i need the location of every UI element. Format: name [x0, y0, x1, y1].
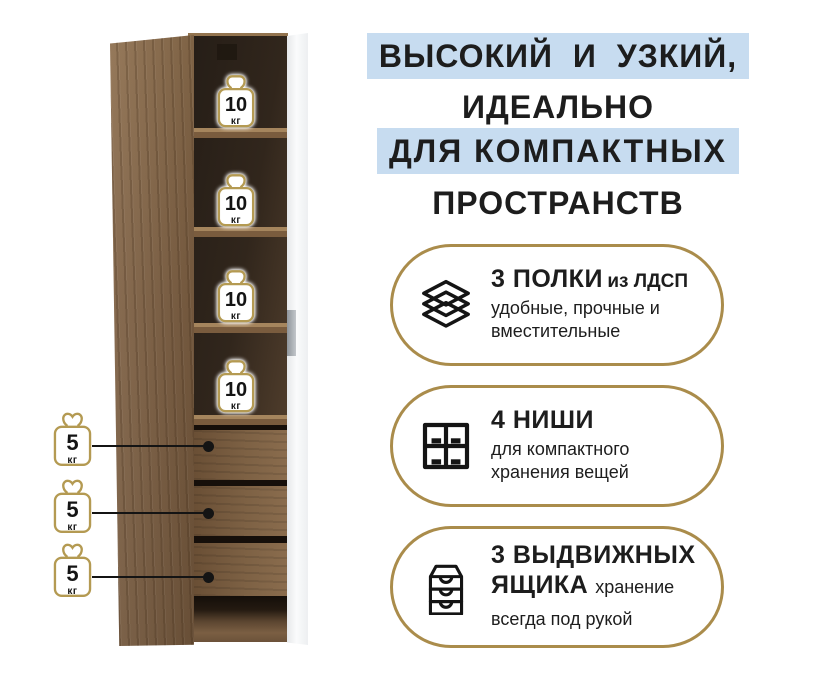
capacity-unit: кг	[67, 523, 77, 533]
cabinet-shelf	[194, 227, 287, 237]
grid-icon	[418, 418, 474, 474]
feature-title-line: 3 ПОЛКИ из ЛДСП	[491, 267, 707, 292]
feature-text: 4 НИШИ для компактного хранения вещей	[491, 408, 693, 484]
capacity-value: 10	[225, 380, 247, 400]
cabinet-illustration: 10кг 10кг 10кг 10кг	[110, 33, 310, 648]
drawer-capacity-badge: 5кг	[53, 410, 92, 468]
feature-title-line: 3 ВЫДВИЖНЫХ ЯЩИКА хранение всегда под ру…	[491, 540, 707, 634]
capacity-value: 5	[66, 563, 78, 585]
feature-subtitle: из ЛДСП	[607, 271, 688, 292]
capacity-value: 10	[225, 95, 247, 115]
title-line-1: ВЫСОКИЙ И УЗКИЙ,	[356, 33, 760, 79]
leader-dot	[203, 572, 214, 583]
leader-line	[92, 576, 210, 578]
leader-line	[92, 512, 210, 514]
feature-card-shelves: 3 ПОЛКИ из ЛДСП удобные, прочные и вмест…	[390, 244, 724, 366]
feature-card-drawers: 3 ВЫДВИЖНЫХ ЯЩИКА хранение всегда под ру…	[390, 526, 724, 648]
title-highlight-1: ВЫСОКИЙ И УЗКИЙ,	[367, 33, 749, 79]
shelf-capacity-badge: 10кг	[217, 172, 255, 228]
feature-text: 3 ВЫДВИЖНЫХ ЯЩИКА хранение всегда под ру…	[491, 540, 707, 634]
door-hinge	[217, 44, 237, 60]
capacity-value: 5	[66, 499, 78, 521]
title-line-3: ДЛЯ КОМПАКТНЫХ	[356, 128, 760, 174]
door-handle	[287, 310, 296, 356]
capacity-unit: кг	[231, 312, 241, 322]
shelf-capacity-badge: 10кг	[217, 73, 255, 129]
leader-dot	[203, 441, 214, 452]
capacity-unit: кг	[231, 216, 241, 226]
feature-card-niches: 4 НИШИ для компактного хранения вещей	[390, 385, 724, 507]
cabinet-door	[287, 33, 308, 645]
cabinet-drawer	[194, 536, 287, 596]
feature-title-line: 4 НИШИ	[491, 408, 693, 433]
cabinet-bottom-niche	[194, 596, 287, 642]
leader-dot	[203, 508, 214, 519]
capacity-unit: кг	[231, 117, 241, 127]
leader-line	[92, 445, 210, 447]
title-highlight-2: ДЛЯ КОМПАКТНЫХ	[377, 128, 739, 174]
infographic-canvas: ВЫСОКИЙ И УЗКИЙ, ИДЕАЛЬНО ДЛЯ КОМПАКТНЫХ…	[0, 0, 816, 700]
title-line-4: ПРОСТРАНСТВ	[356, 180, 760, 226]
cabinet-side-panel	[110, 35, 194, 646]
cabinet-shelf	[194, 415, 287, 425]
shelf-capacity-badge: 10кг	[217, 358, 255, 414]
title-line-2: ИДЕАЛЬНО	[356, 84, 760, 130]
shelf-capacity-badge: 10кг	[217, 268, 255, 324]
capacity-value: 10	[225, 194, 247, 214]
capacity-value: 10	[225, 290, 247, 310]
capacity-unit: кг	[231, 402, 241, 412]
feature-text: 3 ПОЛКИ из ЛДСП удобные, прочные и вмест…	[491, 267, 707, 343]
feature-title: 3 ПОЛКИ	[491, 265, 603, 293]
capacity-value: 5	[66, 432, 78, 454]
feature-description: для компактного хранения вещей	[491, 438, 693, 484]
layers-icon	[418, 277, 474, 333]
drawer-capacity-badge: 5кг	[53, 477, 92, 535]
drawers-icon	[418, 559, 474, 615]
cabinet-drawer	[194, 425, 287, 480]
feature-description: удобные, прочные и вместительные	[491, 297, 707, 343]
drawer-capacity-badge: 5кг	[53, 541, 92, 599]
cabinet-shelf	[194, 323, 287, 333]
capacity-unit: кг	[67, 587, 77, 597]
capacity-unit: кг	[67, 456, 77, 466]
feature-title: 4 НИШИ	[491, 406, 594, 434]
cabinet-shelf	[194, 128, 287, 138]
